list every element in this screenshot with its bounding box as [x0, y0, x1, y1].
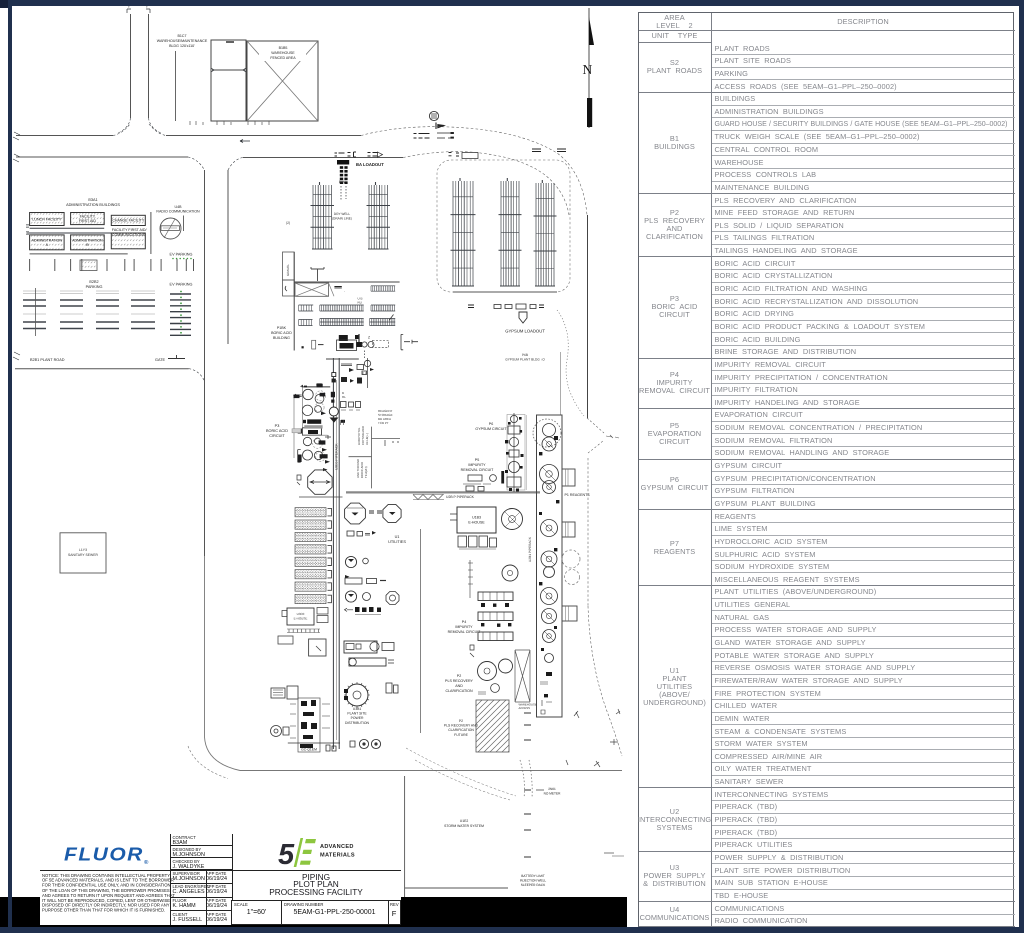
svg-text:B/W: B/W: [339, 180, 346, 184]
svg-text:BUILDING: BUILDING: [273, 336, 290, 340]
svg-text:ACCESS: ACCESS: [519, 706, 531, 710]
svg-text:P3: P3: [275, 424, 280, 428]
svg-text:EV PARKING: EV PARKING: [170, 283, 193, 287]
svg-text:L1Y3: L1Y3: [79, 548, 87, 552]
svg-text:LUNCH FACILITY: LUNCH FACILITY: [32, 217, 62, 221]
svg-text:WAREHOUSE/MAINTENANCE: WAREHOUSE/MAINTENANCE: [157, 39, 208, 43]
svg-text:BATTERY LIMIT: BATTERY LIMIT: [521, 874, 544, 878]
svg-text:PLS RECOVERY AND: PLS RECOVERY AND: [444, 724, 479, 728]
svg-text:P2: P2: [459, 719, 463, 723]
svg-text:FIRST AID: FIRST AID: [79, 219, 97, 223]
svg-text:RL: RL: [342, 395, 346, 399]
svg-text:FACILITY FIRST AID/: FACILITY FIRST AID/: [112, 228, 147, 232]
svg-text:NO METER: NO METER: [544, 792, 562, 796]
svg-text:EV PARKING: EV PARKING: [170, 253, 193, 257]
svg-text:TCB PT: TCB PT: [378, 421, 389, 425]
svg-text:CIRCUIT: CIRCUIT: [269, 434, 285, 438]
svg-text:STORM WATER SYSTEM: STORM WATER SYSTEM: [444, 824, 484, 828]
svg-text:BA LOADOUT: BA LOADOUT: [356, 162, 384, 167]
svg-text:B3A1: B3A1: [88, 198, 97, 202]
svg-text:,: ,: [344, 289, 345, 293]
svg-text:P6B: P6B: [522, 353, 528, 357]
svg-text:E-HOUSE: E-HOUSE: [294, 617, 308, 621]
svg-text:DRY WELL: DRY WELL: [334, 212, 350, 216]
svg-text:RADIO COMMUNICATION: RADIO COMMUNICATION: [156, 210, 200, 214]
svg-text:BORIC ACID: BORIC ACID: [266, 429, 288, 433]
svg-text:ADMINISTRATION BUILDINGS: ADMINISTRATION BUILDINGS: [66, 203, 120, 207]
svg-text:ADVANCED: ADVANCED: [320, 844, 354, 850]
svg-text:GYPSUM LOADOUT: GYPSUM LOADOUT: [505, 329, 545, 334]
svg-text:TK A(2H): TK A(2H): [364, 466, 368, 478]
svg-text:B1C7: B1C7: [178, 34, 187, 38]
svg-text:PARKING: PARKING: [86, 285, 103, 289]
svg-text:U1: U1: [395, 535, 400, 539]
svg-text:P1BK: P1BK: [277, 326, 287, 330]
svg-text:RU: RU: [358, 301, 362, 305]
svg-text:UTILITIES: UTILITIES: [388, 540, 406, 544]
svg-text:U2B P PIPERACK: U2B P PIPERACK: [446, 495, 475, 499]
svg-text:FUTURE: FUTURE: [454, 733, 468, 737]
svg-text:REMOVAL CIRCUIT: REMOVAL CIRCUIT: [461, 468, 495, 472]
svg-text:CLARIFICATION: CLARIFICATION: [448, 728, 474, 732]
svg-text:U4B: U4B: [175, 205, 183, 209]
svg-text:P2: P2: [457, 674, 461, 678]
svg-text:U3B1: U3B1: [353, 707, 362, 711]
svg-text:IMPURITY: IMPURITY: [468, 463, 486, 467]
svg-text:U3C0: U3C0: [297, 612, 305, 616]
svg-text:P4: P4: [462, 620, 466, 624]
svg-text:FENCED AREA: FENCED AREA: [270, 56, 296, 60]
svg-text:CLARIFICATION: CLARIFICATION: [445, 689, 472, 693]
svg-text:MATERIALS: MATERIALS: [320, 853, 355, 859]
svg-text:BORIC ACID: BORIC ACID: [271, 331, 292, 335]
svg-text:WAREHOUSE: WAREHOUSE: [271, 51, 295, 55]
svg-text:SLEEPER RACK: SLEEPER RACK: [521, 883, 546, 887]
svg-text:(2): (2): [286, 221, 290, 225]
svg-text:GATE: GATE: [155, 358, 166, 362]
svg-text:REMOVAL CIRCUIT: REMOVAL CIRCUIT: [448, 630, 482, 634]
svg-text:FACILITY: FACILITY: [80, 215, 96, 219]
svg-text:SANITARY SEWER: SANITARY SEWER: [68, 553, 99, 557]
svg-text:AND: AND: [455, 684, 463, 688]
svg-text:(DRAIN LINE): (DRAIN LINE): [332, 217, 352, 221]
svg-text:IMPURITY: IMPURITY: [455, 625, 473, 629]
svg-text:U1E2: U1E2: [460, 819, 469, 823]
svg-text:U2B3 PIPERACK: U2B3 PIPERACK: [335, 443, 339, 470]
svg-text:PLS RECOVERY: PLS RECOVERY: [445, 679, 473, 683]
svg-text:U2B1 PIPERACK: U2B1 PIPERACK: [528, 536, 532, 562]
svg-text:E-HOUSE: E-HOUSE: [468, 521, 485, 525]
svg-text:COMMUNICATIONS: COMMUNICATIONS: [112, 233, 146, 237]
svg-text:B2B2: B2B2: [89, 280, 98, 284]
svg-text:N: N: [583, 62, 593, 77]
svg-text:B1B5: B1B5: [279, 46, 288, 50]
svg-text:V4 LB(+-): V4 LB(+-): [365, 433, 369, 445]
svg-text:P6: P6: [489, 422, 493, 426]
svg-text:GC-Q1EM: GC-Q1EM: [301, 748, 317, 752]
svg-text:GRAVEL: GRAVEL: [286, 264, 290, 276]
svg-text:ADMINISTRATION: ADMINISTRATION: [72, 238, 103, 242]
svg-text:PLANT SITE: PLANT SITE: [347, 712, 367, 716]
svg-text:2N01: 2N01: [548, 787, 556, 791]
svg-text:E.I: E.I: [362, 372, 366, 376]
svg-text:GYPSUM PLANT BLDG ↑O: GYPSUM PLANT BLDG ↑O: [505, 358, 545, 362]
svg-text:GYPSUM CIRCUIT: GYPSUM CIRCUIT: [475, 427, 507, 431]
svg-text:DISTRIBUTION: DISTRIBUTION: [345, 721, 369, 725]
svg-text:5: 5: [278, 839, 295, 869]
svg-text:INJECTION WELL: INJECTION WELL: [520, 879, 547, 883]
svg-text:Z: Z: [368, 336, 370, 340]
svg-text:POWER: POWER: [351, 716, 364, 720]
svg-text:U1B3: U1B3: [472, 516, 481, 520]
svg-text:B2B1 PLANT ROAD: B2B1 PLANT ROAD: [30, 358, 65, 362]
svg-text:BLDG 120'x110': BLDG 120'x110': [169, 44, 195, 48]
svg-text:ADMINISTRATION: ADMINISTRATION: [32, 238, 63, 242]
svg-text:CHANGE FACILITY: CHANGE FACILITY: [112, 219, 145, 223]
svg-text:P5: P5: [475, 458, 479, 462]
svg-text:P1 REAGENTS: P1 REAGENTS: [565, 493, 591, 497]
